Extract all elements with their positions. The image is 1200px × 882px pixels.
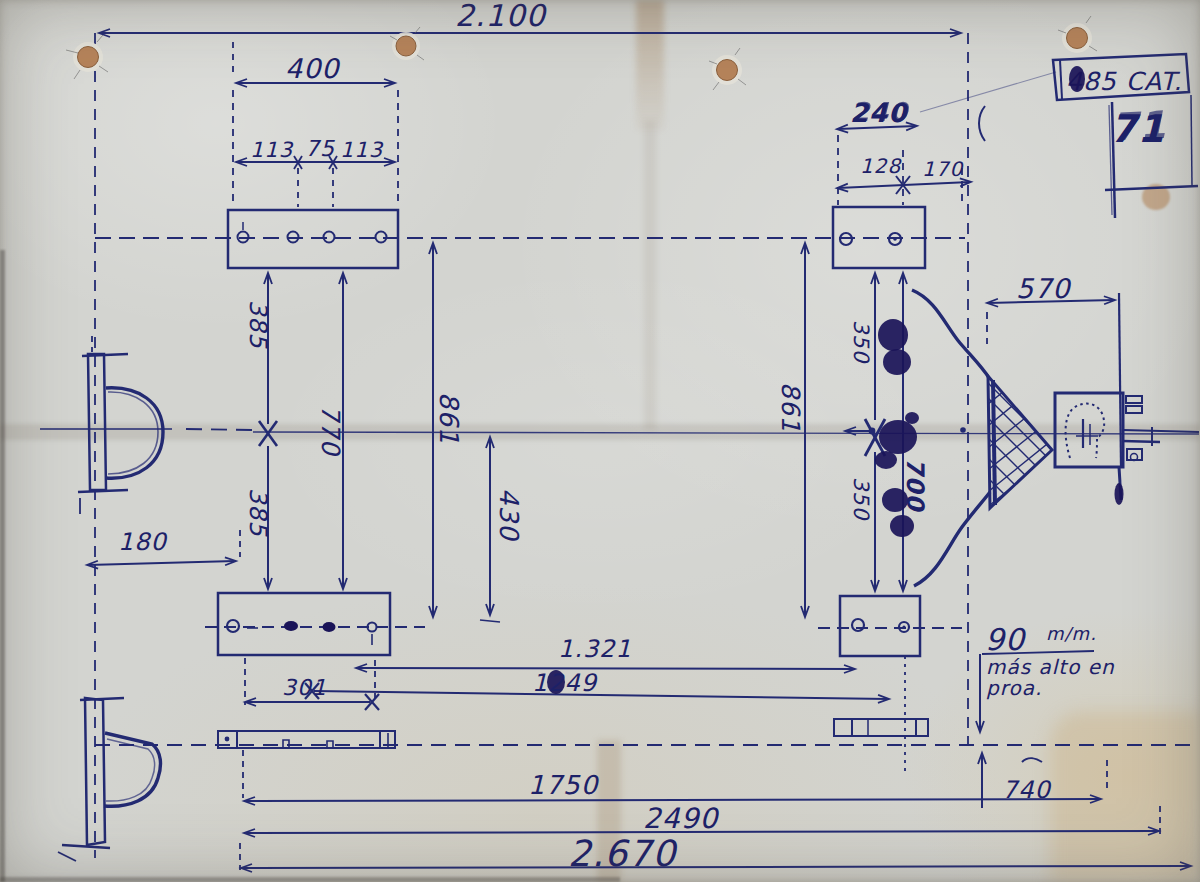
dim-length-rear: 1750 (528, 770, 600, 800)
right-rail (834, 719, 928, 736)
dim-right-span: 700 (901, 458, 929, 512)
coupling-ball-outline (1066, 404, 1105, 458)
dim-length-mid: 2490 (643, 802, 719, 835)
dim-hole-left: 113 (250, 138, 294, 162)
top-left-plate (228, 210, 398, 268)
note-value: 90 (985, 622, 1027, 657)
dim-overall-top: 2.100 (455, 0, 548, 33)
title-block-text: 485 CAT. 71 71 (1066, 66, 1183, 151)
dim-front-right: 170 (922, 157, 964, 181)
bottom-right-plate (840, 596, 920, 656)
dim-front-left: 128 (860, 154, 902, 178)
dim-left-lower-half: 385 (244, 488, 272, 538)
dim-height-offset: 740 (1002, 776, 1052, 804)
tack-hole (66, 35, 108, 79)
dim-left-overall: 861 (434, 392, 464, 445)
dim-bracket-offset: 180 (118, 528, 168, 556)
thumbtack-holes (66, 16, 1097, 90)
construction-lines (80, 33, 1195, 870)
dim-right-lower-half: 350 (849, 477, 873, 521)
hitch-shaft (1123, 430, 1199, 432)
dim-rear-offset: 301 (282, 675, 327, 700)
centerlines (40, 427, 1199, 434)
lower-left-bracket (58, 698, 160, 861)
tack-hole (709, 48, 746, 90)
tack-hole (390, 27, 424, 60)
drawbar-upper-member (912, 290, 989, 378)
dim-front-plate-overwrite: 240 (851, 97, 910, 127)
dim-plate-width: 400 (285, 53, 341, 84)
upper-left-bracket (78, 354, 163, 492)
drawing-svg: 2.100 400 113 75 113 240 240 128 170 570… (0, 0, 1200, 882)
bottom-left-plate (218, 593, 390, 655)
dim-hole-right: 113 (340, 138, 384, 162)
note-unit: m/m. (1046, 623, 1097, 644)
dim-mid-span2: 1249 (532, 669, 598, 697)
dim-mid-span: 1.321 (558, 635, 632, 663)
coupling-box (1055, 393, 1123, 467)
dim-left-span: 770 (316, 405, 345, 457)
dim-half-track: 430 (494, 488, 524, 542)
dim-right-upper-half: 350 (849, 320, 873, 364)
dim-left-upper-half: 385 (244, 300, 272, 350)
overwrite-blob (1069, 66, 1085, 92)
dim-overall-length: 2.670 (568, 833, 678, 874)
dim-right-overall: 861 (776, 382, 805, 433)
dim-hole-center: 75 (305, 136, 335, 161)
note-block: 90 m/m. más alto en proa. (985, 622, 1115, 700)
tack-hole (1058, 16, 1097, 53)
note-line3: proa. (986, 676, 1042, 700)
blueprint-paper: 2.100 400 113 75 113 240 240 128 170 570… (0, 0, 1200, 882)
dimension-labels: 2.100 400 113 75 113 240 240 128 170 570… (118, 0, 1072, 874)
sheet-number-overwrite: 71 (1111, 103, 1168, 150)
dim-drawbar: 570 (1016, 273, 1072, 304)
